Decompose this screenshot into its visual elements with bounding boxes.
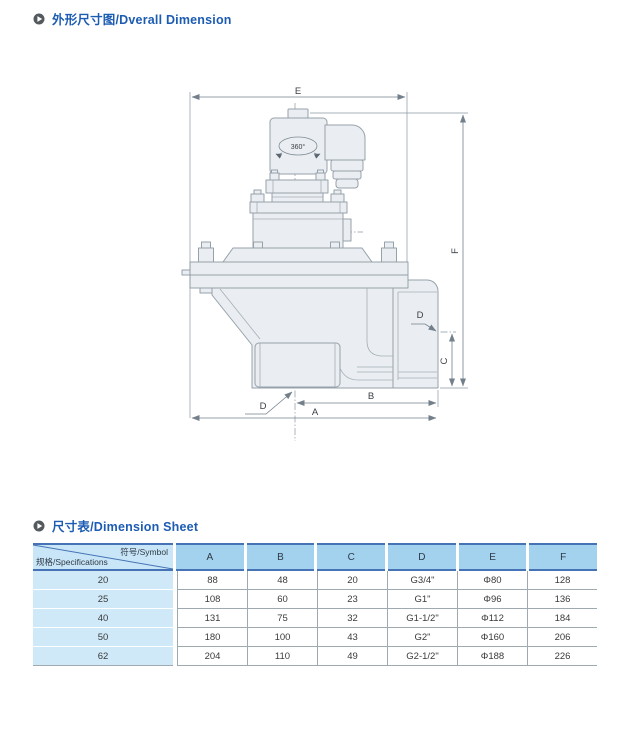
value-cell: Φ96	[458, 590, 528, 609]
value-cell: 110	[248, 647, 318, 666]
value-cell: 23	[318, 590, 388, 609]
column-header-f: F	[529, 543, 597, 571]
armature-flange	[266, 180, 328, 193]
dimension-table: 符号/Symbol 规格/Specifications A B C D E F …	[33, 543, 597, 666]
spec-cell: 40	[33, 609, 173, 628]
table-row: 20 88 48 20 G3/4" Φ80 128	[33, 571, 597, 590]
value-cell: Φ188	[458, 647, 528, 666]
cable-gland-3	[336, 179, 358, 188]
value-cell: 206	[528, 628, 597, 647]
cable-gland-1	[331, 160, 363, 171]
column-header-d: D	[388, 543, 456, 571]
value-cell: 184	[528, 609, 597, 628]
section-title: 外形尺寸图/Dverall Dimension	[52, 9, 232, 28]
pilot-body	[253, 213, 343, 248]
cable-connector-elbow	[325, 125, 365, 160]
label-b: B	[368, 391, 374, 402]
spec-cell: 25	[33, 590, 173, 609]
value-cell: 32	[318, 609, 388, 628]
leader-d-bottom	[245, 392, 292, 414]
column-header-c: C	[317, 543, 385, 571]
column-header-a: A	[176, 543, 244, 571]
value-cell: 226	[528, 647, 597, 666]
value-cell: 48	[248, 571, 318, 590]
value-cell: G3/4"	[388, 571, 458, 590]
value-cell: G2"	[388, 628, 458, 647]
table-row: 25 108 60 23 G1" Φ96 136	[33, 590, 597, 609]
table-row: 40 131 75 32 G1-1/2" Φ112 184	[33, 609, 597, 628]
spec-cell: 50	[33, 628, 173, 647]
value-cell: 108	[177, 590, 248, 609]
coil-top-cap	[288, 109, 308, 118]
value-cell: 60	[248, 590, 318, 609]
section-header-dimension-sheet: 尺寸表/Dimension Sheet	[33, 516, 198, 535]
label-d-outlet: D	[417, 310, 424, 321]
spec-cell: 62	[33, 647, 173, 666]
label-rotation: 360°	[291, 143, 306, 151]
value-cell: Φ80	[458, 571, 528, 590]
spec-cell: 20	[33, 571, 173, 590]
valve-drawing: E F C B A D D 360°	[175, 85, 475, 445]
value-cell: 100	[248, 628, 318, 647]
section-header-overall-dimension: 外形尺寸图/Dverall Dimension	[33, 9, 232, 28]
column-header-b: B	[247, 543, 315, 571]
value-cell: 75	[248, 609, 318, 628]
table-row: 62 204 110 49 G2-1/2" Φ188 226	[33, 647, 597, 666]
corner-spec-label: 规格/Specifications	[36, 556, 108, 568]
valve-body	[182, 109, 438, 388]
value-cell: 88	[177, 571, 248, 590]
play-bullet-icon	[33, 520, 45, 532]
value-cell: 128	[528, 571, 597, 590]
label-c: C	[439, 357, 450, 364]
value-cell: 136	[528, 590, 597, 609]
label-e: E	[295, 86, 301, 97]
value-cell: 180	[177, 628, 248, 647]
column-header-e: E	[459, 543, 527, 571]
label-a: A	[312, 407, 319, 418]
cover-flange	[223, 248, 372, 262]
play-bullet-icon	[33, 13, 45, 25]
value-cell: 131	[177, 609, 248, 628]
value-cell: 43	[318, 628, 388, 647]
value-cell: 204	[177, 647, 248, 666]
inlet-port	[255, 343, 340, 387]
table-row: 50 180 100 43 G2" Φ160 206	[33, 628, 597, 647]
label-f: F	[450, 248, 461, 254]
cable-gland-2	[333, 171, 361, 179]
label-d-bottom: D	[260, 401, 267, 412]
value-cell: Φ112	[458, 609, 528, 628]
body-flange-plate	[190, 275, 408, 288]
corner-symbol-label: 符号/Symbol	[120, 546, 168, 558]
value-cell: Φ160	[458, 628, 528, 647]
bonnet-plate	[190, 262, 408, 275]
value-cell: 49	[318, 647, 388, 666]
pilot-cover	[250, 202, 347, 213]
value-cell: G1"	[388, 590, 458, 609]
value-cell: 20	[318, 571, 388, 590]
table-header-row: 符号/Symbol 规格/Specifications A B C D E F	[33, 543, 597, 571]
value-cell: G2-1/2"	[388, 647, 458, 666]
section-title: 尺寸表/Dimension Sheet	[52, 516, 198, 535]
corner-cell: 符号/Symbol 规格/Specifications	[33, 543, 173, 571]
value-cell: G1-1/2"	[388, 609, 458, 628]
